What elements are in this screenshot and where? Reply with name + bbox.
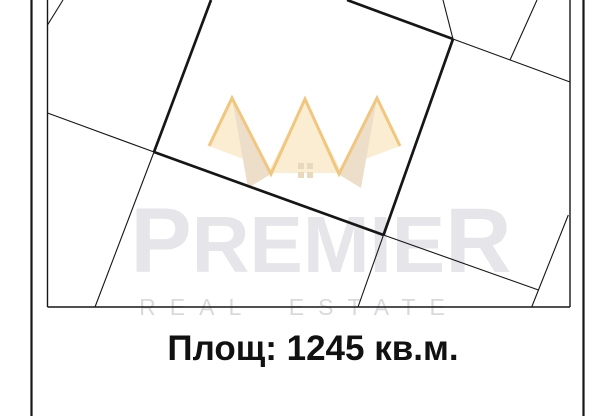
cadastral-sketch-image: PREMIER REAL ESTATE Площ: 1245 кв.м. bbox=[0, 0, 614, 416]
map-line bbox=[95, 152, 154, 307]
window-pane bbox=[307, 172, 313, 178]
map-line bbox=[384, 235, 539, 290]
crown-center-peak bbox=[268, 99, 342, 173]
map-line bbox=[532, 215, 569, 307]
crown-logo-icon bbox=[209, 98, 400, 188]
map-line bbox=[154, 0, 211, 152]
window-pane bbox=[298, 172, 304, 178]
map-line bbox=[443, 0, 453, 39]
area-caption: Площ: 1245 кв.м. bbox=[12, 331, 614, 366]
map-line bbox=[48, 113, 155, 152]
map-line bbox=[48, 0, 64, 25]
window-pane bbox=[298, 163, 304, 169]
map-line bbox=[358, 235, 384, 307]
map-line bbox=[453, 39, 570, 82]
window-pane bbox=[307, 163, 313, 169]
map-line bbox=[347, 0, 453, 39]
map-line bbox=[510, 0, 537, 60]
